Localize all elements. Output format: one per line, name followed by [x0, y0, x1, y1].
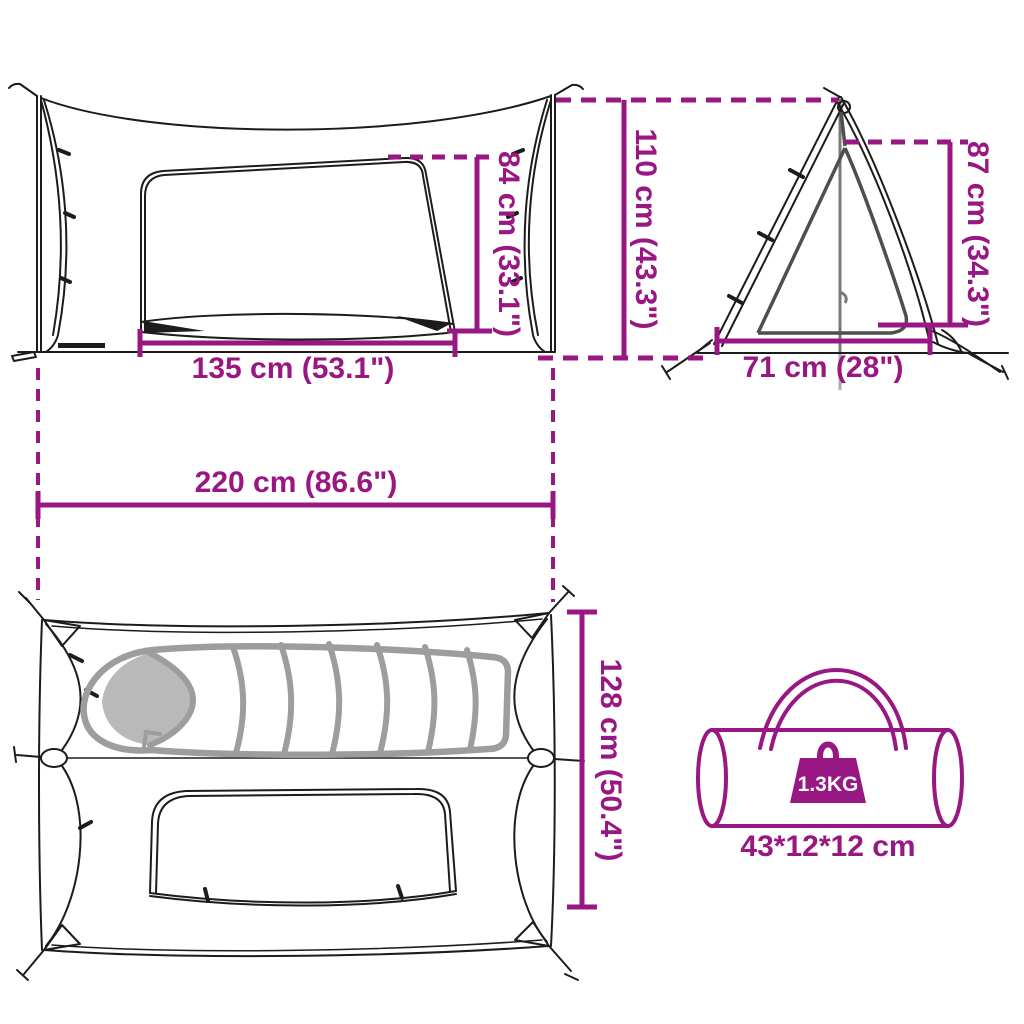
sleeping-bag-ribs: [233, 644, 476, 754]
front-ridge-edge: [41, 96, 551, 130]
side-left-slope: [714, 97, 844, 346]
carry-bag-icon: 1.3KG 43*12*12 cm: [698, 670, 962, 863]
top-right-pole-base: [528, 749, 554, 767]
front-right-fabric: [525, 100, 551, 352]
front-left-guy-line: [9, 84, 37, 96]
door-width-label: 135 cm (53.1"): [192, 352, 395, 385]
top-door-tabs: [205, 886, 402, 901]
product-dimension-diagram: 1.3KG 43*12*12 cm: [0, 0, 1024, 1024]
top-door: [150, 789, 456, 893]
side-view-drawing: [662, 88, 1008, 390]
bag-left-end: [698, 730, 726, 826]
top-left-mid-guy: [14, 747, 41, 762]
top-door-sill: [150, 891, 456, 906]
top-right-catenary: [514, 619, 547, 942]
front-sill-left-wedge: [143, 321, 205, 333]
side-apex-tip: [824, 88, 840, 97]
front-floor-strip: [58, 343, 105, 348]
top-corner-tl: [19, 592, 80, 646]
dim-inner-height: [845, 142, 968, 325]
dim-door-height: [388, 157, 492, 331]
top-view-drawing: [14, 586, 584, 980]
door-height-label: 84 cm (33.1"): [492, 151, 525, 337]
inner-height-label: 87 cm (34.3"): [961, 141, 994, 327]
front-right-pole: [551, 95, 555, 352]
side-inner-tent: [758, 148, 906, 333]
front-door: [141, 158, 455, 332]
side-inner-strap: [841, 112, 845, 146]
base-depth-label: 71 cm (28"): [743, 351, 904, 384]
bag-handle: [760, 670, 906, 749]
front-left-fabric: [41, 100, 66, 352]
front-left-stake: [12, 352, 36, 361]
total-width-label: 128 cm (50.4"): [594, 659, 627, 862]
side-right-foot: [930, 330, 1008, 379]
top-corner-br: [515, 922, 578, 980]
bag-size-label: 43*12*12 cm: [740, 830, 915, 863]
front-left-pole: [37, 96, 41, 351]
weight-value: 1.3KG: [798, 773, 859, 796]
weight-icon: 1.3KG: [790, 745, 866, 804]
total-length-label: 220 cm (86.6"): [195, 466, 398, 499]
front-right-guy-line: [555, 85, 583, 95]
sleeping-bag: [84, 644, 508, 755]
bag-right-end: [934, 730, 962, 826]
top-left-catenary: [46, 624, 81, 946]
side-right-slope: [836, 97, 938, 345]
dim-total-height: [538, 100, 838, 358]
top-corner-tr: [515, 586, 574, 638]
top-left-pole-base: [41, 749, 67, 767]
weight-handle-loop: [820, 745, 836, 759]
front-sill-right-wedge: [396, 316, 452, 331]
total-height-label: 110 cm (43.3"): [629, 128, 662, 329]
diagram-canvas: 1.3KG 43*12*12 cm: [0, 0, 1024, 1024]
